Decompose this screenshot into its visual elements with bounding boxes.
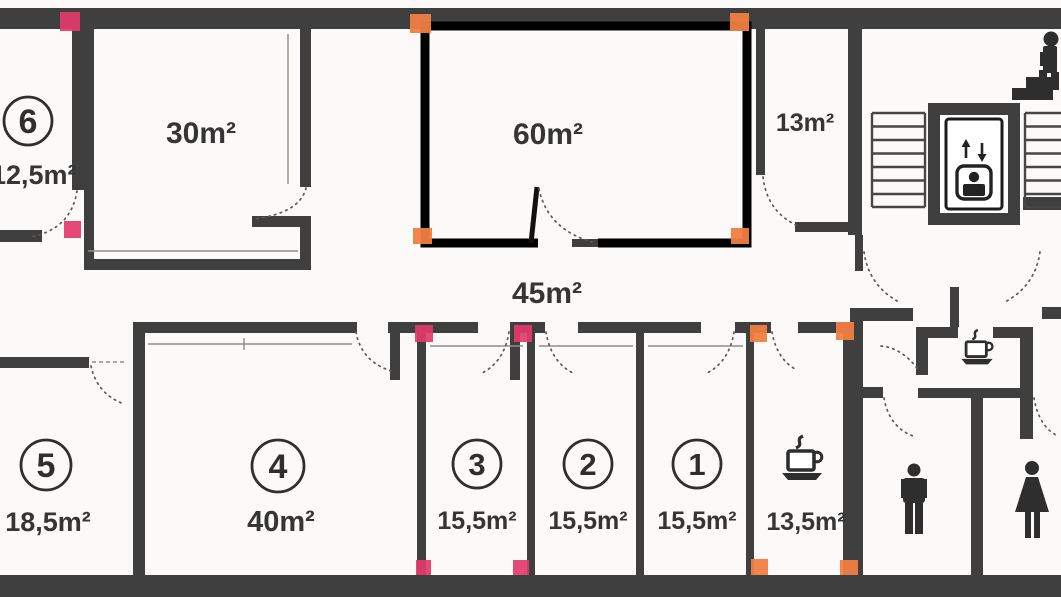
door-arc	[1034, 398, 1058, 436]
room-number: 4	[269, 448, 288, 486]
arm	[923, 479, 927, 498]
room-60-outline	[425, 26, 747, 243]
steam	[972, 330, 977, 339]
steam	[796, 436, 803, 448]
wall-segment	[417, 333, 426, 575]
room-number: 1	[688, 447, 705, 482]
wall-segment	[0, 357, 89, 368]
room-area-label: 13m²	[776, 109, 834, 137]
markers	[60, 12, 858, 575]
wall-segment	[84, 29, 94, 270]
person-arm	[1040, 52, 1045, 66]
leg	[1025, 512, 1031, 538]
door-arc	[480, 332, 509, 374]
elevator	[928, 103, 1020, 225]
cup-body	[966, 342, 986, 357]
room-area-label: 40m²	[247, 506, 315, 538]
door-arc	[356, 332, 391, 371]
wall-segment	[918, 388, 1031, 398]
saucer	[782, 473, 822, 480]
head	[1025, 461, 1039, 475]
wall-segment	[795, 222, 853, 232]
marker-orange	[750, 325, 767, 342]
room-number-badges: 6 5 4 3 2 1	[4, 97, 721, 492]
wall-segment	[855, 235, 863, 271]
stair-treads	[1025, 113, 1061, 207]
person-head	[1044, 32, 1059, 47]
door-arc	[254, 188, 306, 219]
room-area-label: 15,5m²	[437, 507, 516, 535]
marker-orange	[836, 322, 854, 340]
marker-orange	[410, 14, 431, 33]
room-number: 5	[37, 447, 56, 485]
room-number: 2	[579, 447, 596, 482]
door-arc	[705, 332, 734, 374]
door-arc	[1003, 252, 1040, 303]
staircase-right-icon	[1025, 113, 1061, 207]
wall-segment	[756, 29, 765, 175]
room-area-label: 15,5m²	[548, 507, 627, 535]
wall-segment	[971, 398, 983, 575]
marker-orange	[730, 13, 749, 31]
marker-pink	[513, 560, 529, 575]
wall-segment	[133, 322, 357, 333]
person-on-stairs-icon	[1012, 32, 1059, 101]
wall-segment	[863, 308, 913, 321]
stair-treads	[872, 113, 925, 207]
cup-body	[788, 451, 814, 470]
wall-segment	[133, 322, 145, 575]
wall-segment	[1042, 307, 1061, 319]
room-area-label: 12,5m²	[0, 160, 77, 190]
person-leg	[1039, 70, 1047, 88]
dress	[1015, 477, 1049, 512]
floor-plan: 6 5 4 3 2 1 12,5m² 30m² 60m² 13m² 45m² 1…	[0, 0, 1061, 597]
door-arc	[546, 332, 575, 374]
torso	[903, 478, 925, 503]
staircase-left-icon	[872, 113, 925, 207]
person-torso	[963, 184, 985, 196]
wall-segment	[300, 216, 311, 270]
wall-segment	[84, 259, 311, 270]
person-torso	[1043, 46, 1057, 73]
door-arc	[763, 177, 796, 225]
wall-segment	[636, 333, 644, 575]
room-area-label: 15,5m²	[657, 507, 736, 535]
leg	[915, 503, 923, 534]
wall-segment	[863, 387, 883, 398]
door-arc	[91, 366, 124, 404]
marker-pink	[415, 325, 433, 342]
wall-segment	[527, 333, 535, 575]
room-area-label: 18,5m²	[5, 507, 91, 537]
room-number: 3	[468, 447, 485, 482]
wall-segment	[300, 29, 311, 187]
wall-segment	[746, 333, 754, 575]
coffee-cup-icon	[782, 436, 822, 480]
wall-segment	[848, 29, 862, 235]
marker-pink	[514, 325, 532, 342]
marker-orange	[840, 560, 858, 575]
wall-segment	[578, 322, 701, 333]
wall-segment	[950, 287, 959, 327]
man-icon	[901, 464, 927, 535]
marker-pink	[60, 12, 80, 31]
room-area-label: 13,5m²	[766, 508, 845, 536]
room-area-label: 60m²	[513, 118, 583, 151]
room-area-label: 45m²	[512, 277, 582, 310]
leg	[905, 503, 913, 534]
door-arc	[772, 332, 797, 370]
marker-orange	[751, 559, 768, 575]
marker-pink	[64, 221, 81, 238]
marker-orange	[731, 228, 749, 244]
door-arc	[881, 346, 919, 371]
woman-icon	[1015, 461, 1049, 538]
person-leg	[1051, 72, 1059, 90]
room-area-label: 30m²	[166, 117, 236, 150]
leg	[1034, 512, 1040, 538]
door-leaf	[531, 187, 537, 243]
wall-segment	[916, 327, 928, 375]
door-arc	[864, 252, 901, 303]
kitchenette-coffee-icon	[961, 330, 992, 364]
saucer	[961, 359, 992, 364]
wall-segment	[843, 333, 862, 575]
sill-lines	[88, 34, 743, 350]
marker-pink	[416, 560, 431, 575]
wall-segment	[0, 575, 1061, 597]
head	[908, 464, 921, 477]
arm	[901, 479, 905, 498]
door-arc	[539, 189, 596, 243]
room-number: 6	[19, 103, 38, 141]
person-head	[969, 172, 979, 182]
wall-segment	[1020, 327, 1033, 439]
floor-plan-scan: 6 5 4 3 2 1 12,5m² 30m² 60m² 13m² 45m² 1…	[0, 0, 1061, 597]
marker-orange	[413, 228, 432, 244]
door-arc	[884, 398, 913, 436]
